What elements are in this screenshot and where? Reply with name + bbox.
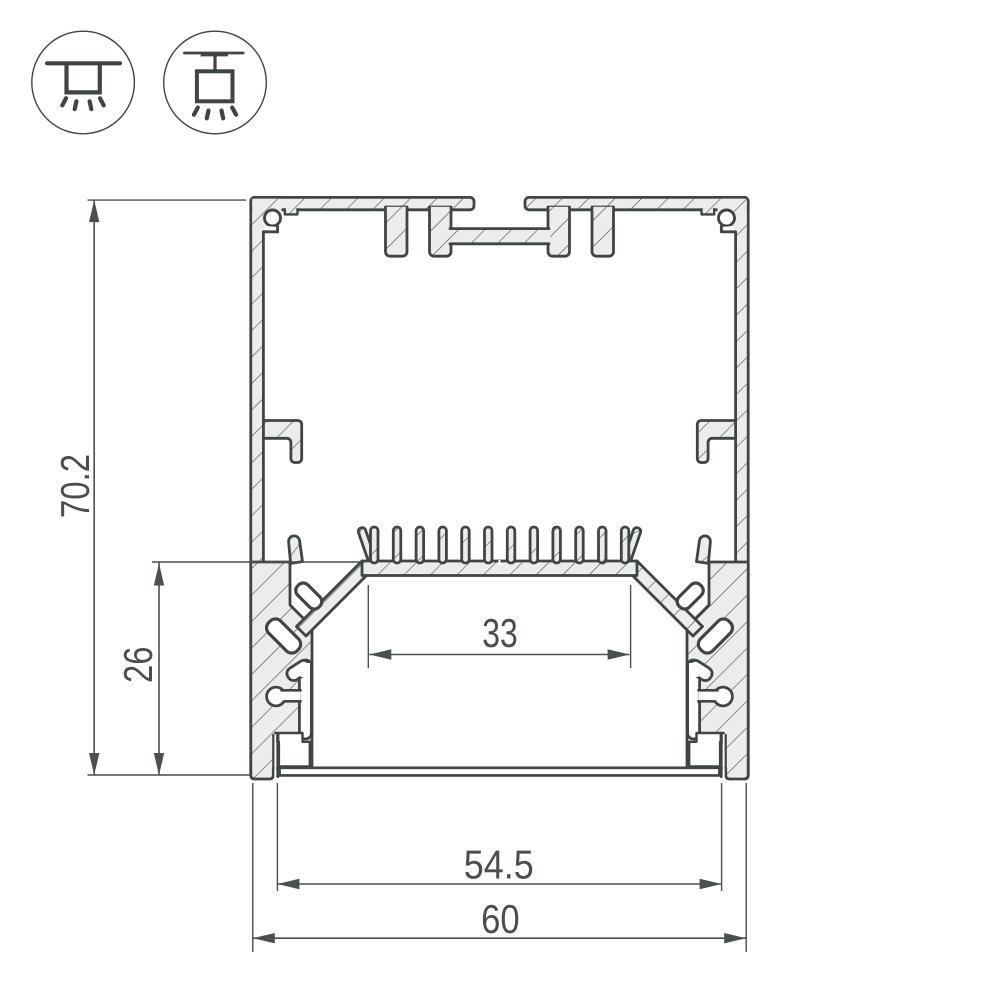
svg-text:33: 33 xyxy=(482,610,518,656)
svg-text:70.2: 70.2 xyxy=(52,454,98,518)
svg-text:60: 60 xyxy=(481,896,520,942)
svg-text:54.5: 54.5 xyxy=(464,841,534,887)
svg-text:26: 26 xyxy=(115,647,161,684)
